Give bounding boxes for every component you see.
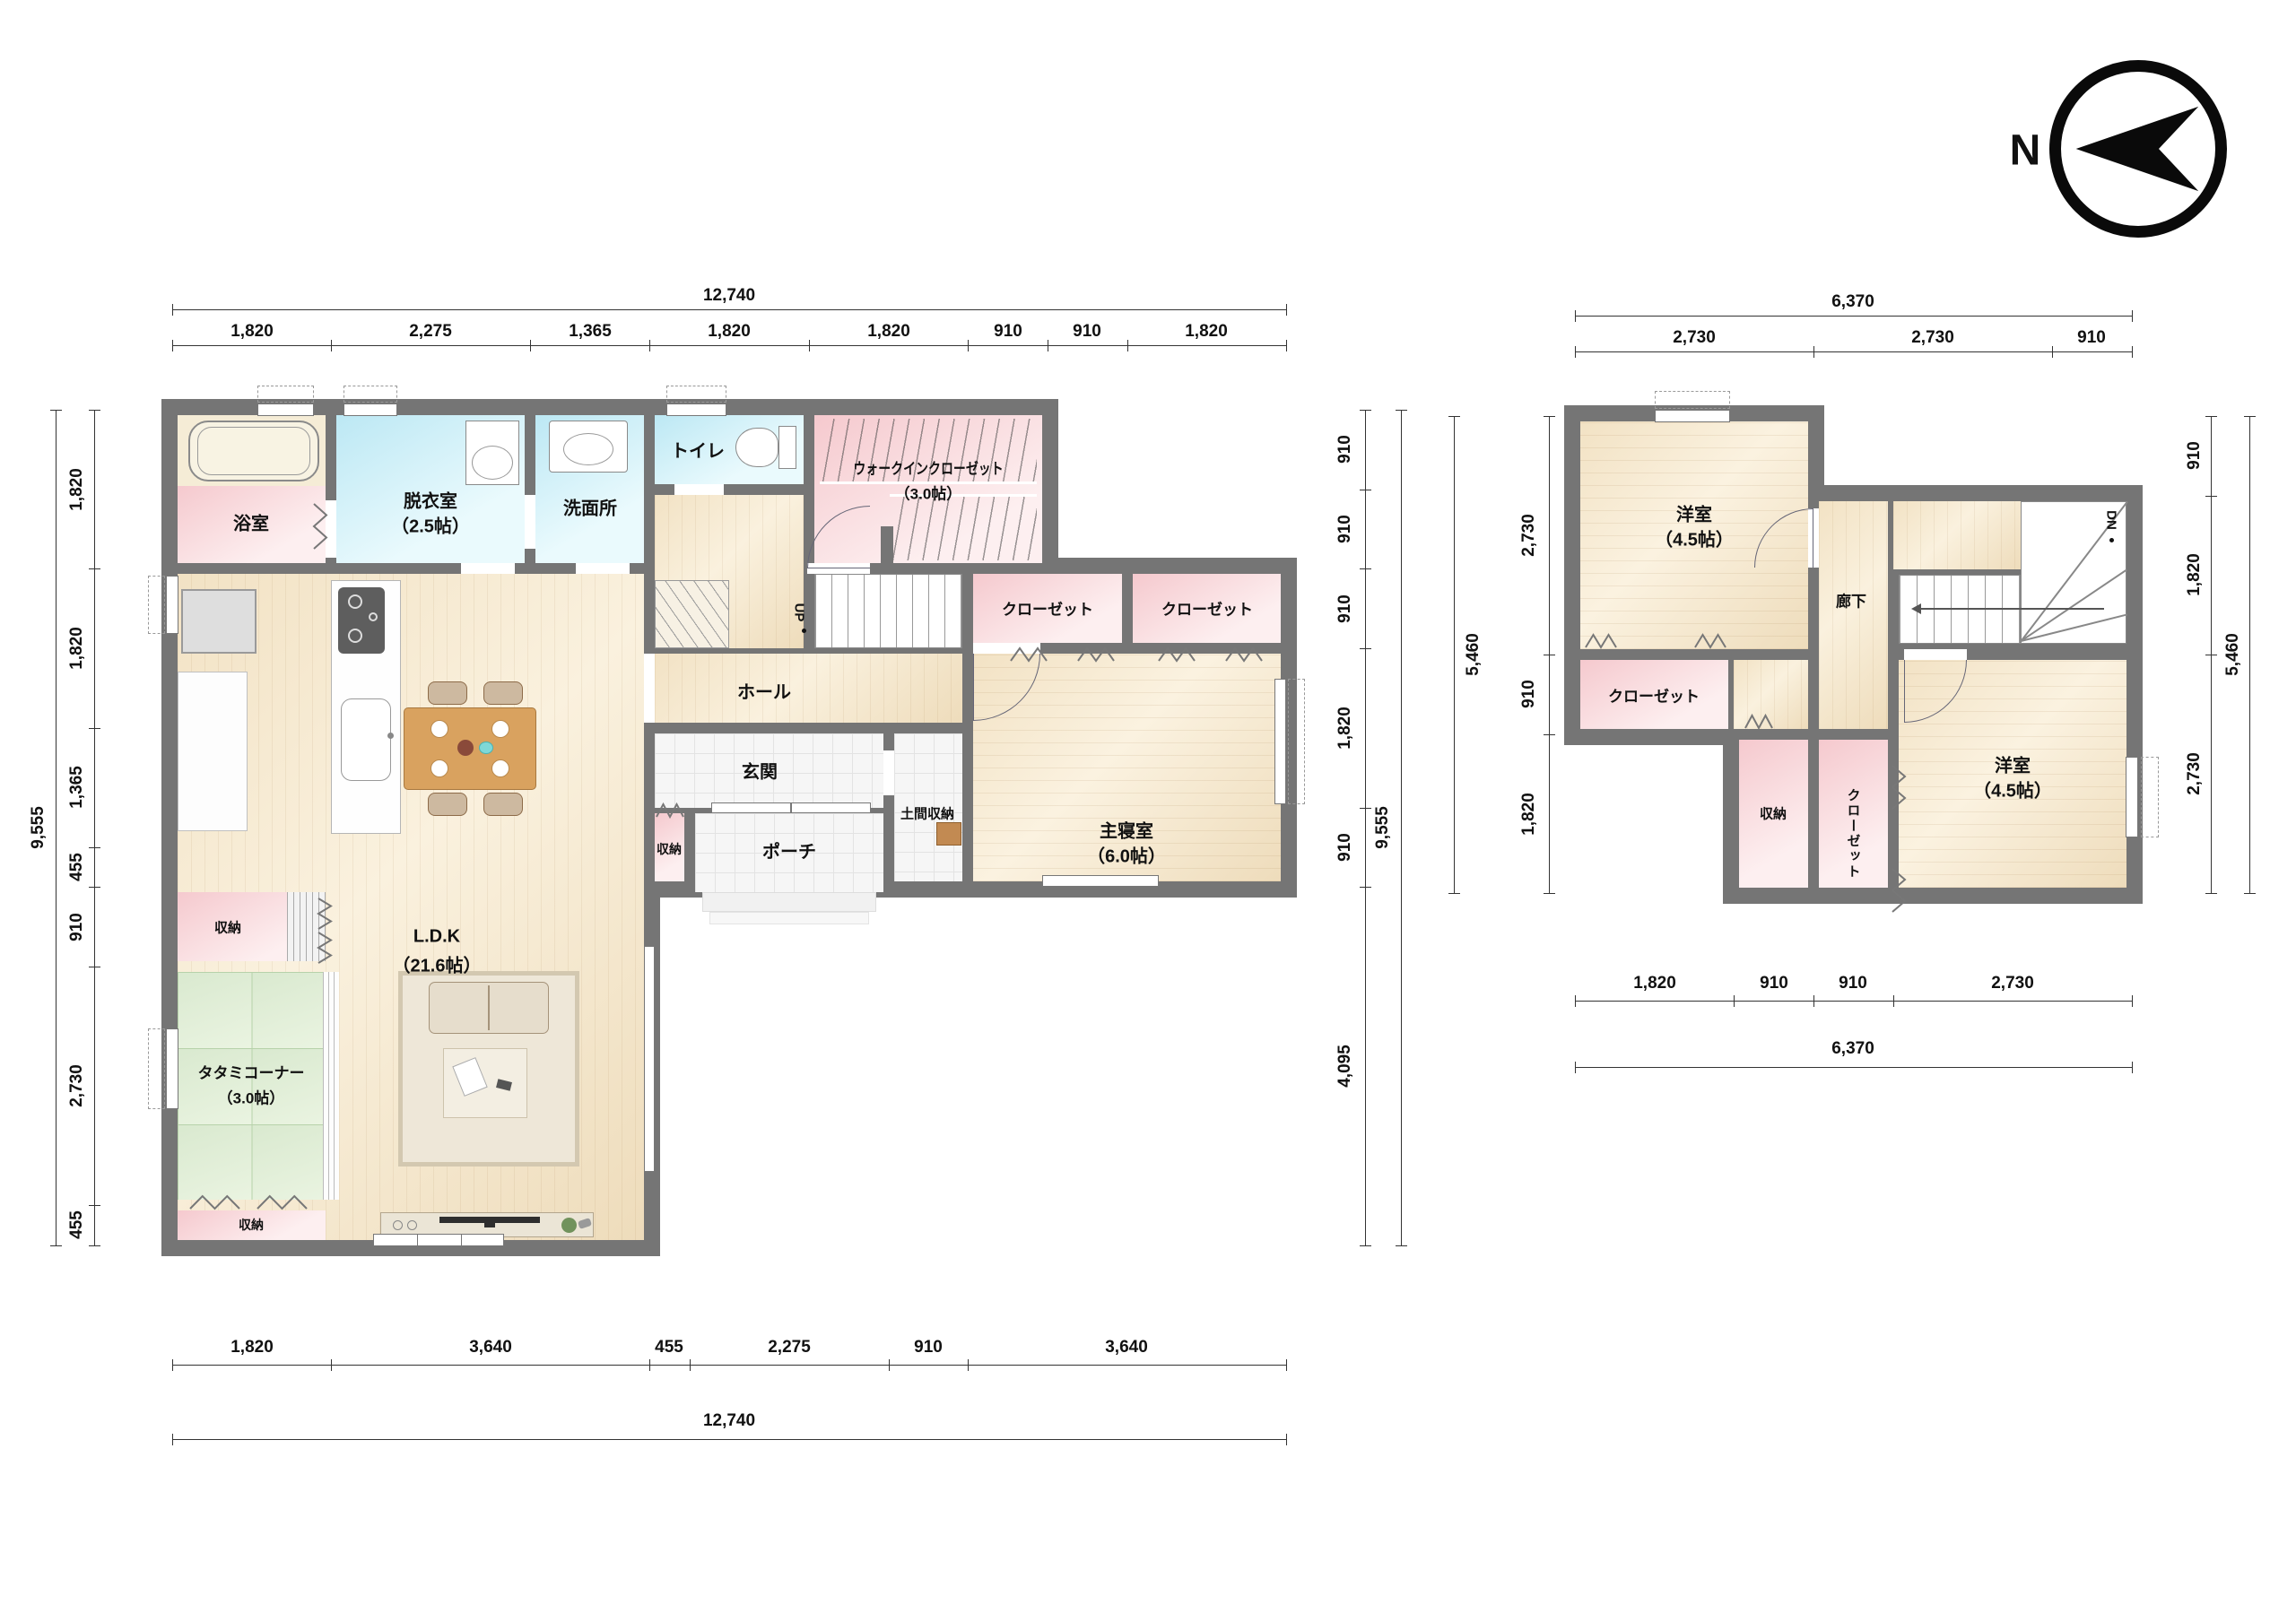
dim-line — [1365, 410, 1366, 1245]
dim-tick — [1575, 310, 1576, 322]
dim-tick — [1544, 655, 1555, 655]
dim-line — [1454, 416, 1455, 893]
dim-tick — [2132, 995, 2133, 1007]
entrance-label: 玄関 — [742, 758, 778, 784]
bifold-door-icon — [1745, 716, 1772, 728]
dim-tick — [2205, 496, 2217, 497]
sofa-cushion-divider — [488, 985, 490, 1030]
dim-tick — [889, 1359, 890, 1371]
wic-hanger-hatch — [890, 494, 1037, 560]
plate-icon — [430, 759, 448, 777]
dim: 455 — [655, 1338, 683, 1357]
doma-storage-label: 土間収納 — [900, 804, 954, 823]
dim-tick — [331, 340, 332, 351]
window-tall — [644, 946, 655, 1172]
dim: 3,640 — [469, 1338, 512, 1357]
dining-chair — [483, 793, 523, 816]
dim-tick — [89, 410, 100, 411]
toilet-bowl-icon — [735, 428, 778, 467]
dim-line — [1401, 410, 1402, 1245]
dim-tick — [2132, 346, 2133, 358]
dim-line — [1575, 1067, 2132, 1068]
dim: 910 — [1839, 974, 1867, 993]
dim-tick — [172, 1359, 173, 1371]
dim-tick — [1544, 893, 1555, 894]
toilet-tank — [778, 426, 796, 469]
storage-entry-label: 収納 — [657, 840, 682, 858]
dim: 455 — [67, 1210, 87, 1239]
dim: 1,820 — [67, 627, 87, 670]
dim-tick — [2052, 346, 2053, 358]
dim: 910 — [1335, 515, 1355, 543]
door-gap — [525, 495, 535, 549]
dim-tick — [649, 1359, 650, 1371]
bifold-door-icon — [1892, 869, 1905, 912]
plate-icon — [430, 720, 448, 738]
wic-label: ウォークインクローゼット — [853, 456, 1003, 479]
dim-tick — [1544, 416, 1555, 417]
wic-wall-stub — [881, 526, 893, 568]
kitchen-sink-icon — [341, 698, 391, 781]
bedroom-a-label: 洋室 — [1676, 500, 1712, 526]
dim-tick — [1448, 416, 1460, 417]
porch-step — [702, 892, 876, 912]
plate-icon — [491, 759, 509, 777]
window-shutter-dashed — [344, 386, 397, 403]
stairs-up-label: UP — [792, 603, 807, 622]
fridge-icon — [181, 589, 257, 654]
dim-tick — [2132, 310, 2133, 322]
dim-tick — [172, 340, 173, 351]
window — [257, 403, 314, 416]
dim-line — [94, 410, 95, 1245]
dim-tick — [2205, 655, 2217, 655]
door-gap — [1904, 649, 1967, 660]
door-gap — [326, 500, 336, 558]
window — [166, 1028, 178, 1109]
dim-line — [172, 309, 1286, 310]
storage-mid-label: 収納 — [214, 918, 241, 937]
stair-arrow-line — [1920, 608, 2104, 610]
dim-tick — [1286, 340, 1287, 351]
dim-tick — [968, 340, 969, 351]
wic-size-label: （3.0帖） — [895, 481, 962, 504]
tv-icon — [439, 1217, 540, 1223]
closet-a-label: クローゼット — [1608, 684, 1700, 707]
bifold-door-icon — [257, 1196, 307, 1209]
dim: 910 — [2185, 441, 2205, 470]
door-gap — [674, 484, 724, 495]
window — [2126, 757, 2138, 837]
dim: 2,275 — [409, 322, 452, 342]
closet-b-label: クローゼット — [1844, 788, 1863, 880]
dim: 910 — [1519, 680, 1539, 708]
dim: 2,275 — [768, 1338, 811, 1357]
window — [166, 576, 178, 634]
dim: 910 — [1760, 974, 1788, 993]
dim-tick — [1813, 995, 1814, 1007]
dim-line — [1575, 351, 2132, 352]
dim-tick — [809, 340, 810, 351]
dim-tick — [2132, 1062, 2133, 1073]
dim-tick — [89, 887, 100, 888]
dressing-label: 脱衣室 — [404, 487, 457, 513]
dim-tick — [1448, 893, 1460, 894]
window-shutter-dashed — [257, 386, 314, 403]
dim: 1,820 — [230, 322, 274, 342]
dim-tick — [649, 340, 650, 351]
dim-tick — [1286, 1359, 1287, 1371]
toilet-label: トイレ — [671, 437, 725, 463]
bifold-door-icon — [190, 1196, 239, 1209]
plate-icon — [491, 720, 509, 738]
plant-icon — [561, 1218, 577, 1233]
dim-line — [172, 1439, 1286, 1440]
dim-tick — [89, 847, 100, 848]
bifold-door-icon — [314, 504, 326, 549]
dim-tick — [89, 967, 100, 967]
stove-burner — [348, 629, 362, 643]
dim-tick — [1360, 568, 1371, 569]
window-shutter-dashed — [2141, 757, 2159, 837]
staircase-up — [814, 574, 962, 648]
dim: 3,640 — [1105, 1338, 1148, 1357]
stove-burner — [369, 612, 378, 621]
dim-bottom-total: 12,740 — [703, 1411, 755, 1431]
bowl-icon — [457, 740, 474, 756]
dim: 2,730 — [2185, 752, 2205, 795]
dim: 1,820 — [1335, 707, 1355, 750]
dining-chair — [428, 681, 467, 705]
dim-line — [172, 1365, 1286, 1366]
tv-stand — [484, 1223, 495, 1227]
bedroom-b-label: 洋室 — [1995, 751, 2031, 777]
teal-plate-icon — [479, 742, 493, 754]
window — [666, 403, 726, 416]
dim-tick — [89, 728, 100, 729]
dim-tick — [50, 410, 62, 411]
stair-arrow-head — [1911, 603, 1921, 614]
dim-line — [1575, 1001, 2132, 1002]
window-shutter-dashed — [148, 576, 165, 634]
window — [1042, 875, 1159, 887]
dim-tick — [530, 340, 531, 351]
closet-b-label: クローゼット — [1161, 597, 1253, 620]
dim: 910 — [1073, 322, 1101, 342]
dim: 2,730 — [1911, 328, 1954, 348]
dim-tick — [1396, 410, 1407, 411]
dim: 2,730 — [1991, 974, 2034, 993]
dim: 2,730 — [1519, 514, 1539, 557]
dim-tick — [1734, 995, 1735, 1007]
ldk-label: L.D.K — [413, 927, 460, 948]
bifold-door-icon — [318, 932, 331, 963]
bifold-door-icon — [1695, 635, 1726, 647]
stove-burner — [348, 594, 362, 609]
dim-tick — [1575, 995, 1576, 1007]
dressing-size-label: （2.5帖） — [391, 512, 470, 538]
bedroom-a-size-label: （4.5帖） — [1655, 525, 1734, 551]
dim-tick — [1544, 734, 1555, 735]
bifold-door-icon — [1892, 766, 1905, 809]
dim-top-total: 6,370 — [1831, 292, 1874, 312]
dim-tick — [172, 1434, 173, 1445]
dim-tick — [2244, 416, 2256, 417]
dining-chair — [428, 793, 467, 816]
storage-bottom-label: 収納 — [239, 1216, 264, 1234]
dim-tick — [1360, 490, 1371, 490]
dim: 4,095 — [1335, 1045, 1355, 1088]
bath-label: 浴室 — [233, 509, 269, 535]
dim: 1,365 — [67, 766, 87, 809]
dim: 910 — [994, 322, 1022, 342]
dim-tick — [172, 304, 173, 316]
door-gap — [644, 654, 655, 723]
dim-tick — [1396, 1245, 1407, 1246]
porch-label: ポーチ — [762, 837, 816, 863]
compass — [2049, 60, 2227, 238]
dim: 1,820 — [2185, 553, 2205, 596]
dim-tick — [1048, 340, 1048, 351]
dim-tick — [2205, 416, 2217, 417]
dim-tick — [89, 1245, 100, 1246]
second-floor-plan: 洋室 （4.5帖） 廊下 DN クローゼット 収納 クローゼット 洋室 （4.5… — [1575, 416, 2132, 893]
corridor-floor — [1819, 501, 1888, 729]
faucet-icon — [387, 733, 394, 739]
bifold-door-icon — [1159, 648, 1195, 661]
hall-label: ホール — [737, 678, 791, 704]
window-shutter-dashed — [1655, 391, 1730, 409]
tatami-label: タタミコーナー — [198, 1061, 305, 1083]
window — [1655, 410, 1730, 422]
washing-machine-drum — [472, 446, 513, 480]
dim-tick — [1575, 1062, 1576, 1073]
dim: 910 — [2077, 328, 2106, 348]
up-dot — [802, 629, 806, 633]
dim: 910 — [67, 913, 87, 941]
dim-tick — [1286, 1434, 1287, 1445]
porch-step — [709, 912, 869, 924]
bifold-door-icon — [1586, 635, 1616, 647]
dim: 910 — [1335, 833, 1355, 862]
dim-tick — [1813, 346, 1814, 358]
dim-tick — [331, 1359, 332, 1371]
dim-line — [1575, 316, 2132, 317]
dim-tick — [690, 1359, 691, 1371]
stair-landing-floor — [1893, 501, 2021, 569]
window-shutter-dashed — [1288, 679, 1305, 804]
dim-bottom-total: 6,370 — [1831, 1039, 1874, 1059]
north-label: N — [2010, 126, 2041, 176]
corridor-label: 廊下 — [1836, 589, 1866, 612]
dim-tick — [1360, 410, 1371, 411]
bifold-door-icon — [1078, 648, 1114, 661]
dim-tick — [1127, 340, 1128, 351]
dim-line — [2249, 416, 2250, 893]
floorplan-canvas: 浴室 脱衣室 （2.5帖） 洗面所 トイレ ウォークインクローゼット （3.0帖… — [0, 0, 2296, 1622]
dim-tick — [968, 1359, 969, 1371]
dining-chair — [483, 681, 523, 705]
dim-tick — [1360, 808, 1371, 809]
dim: 455 — [67, 853, 87, 881]
bifold-door-icon — [318, 898, 331, 929]
bifold-door-icon — [1011, 648, 1047, 661]
window — [344, 403, 397, 416]
closet-a-label: クローゼット — [1002, 597, 1093, 620]
dim-tick — [1360, 648, 1371, 649]
dim: 2,730 — [1673, 328, 1716, 348]
dim-tick — [89, 1205, 100, 1206]
washroom-label: 洗面所 — [563, 494, 617, 520]
dn-dot — [2109, 538, 2114, 542]
dim-right-total: 9,555 — [1373, 806, 1393, 849]
dim-tick — [89, 568, 100, 569]
ldk-size-label: （21.6帖） — [393, 951, 482, 977]
dim: 1,820 — [1185, 322, 1228, 342]
dim: 1,820 — [67, 468, 87, 511]
dim: 910 — [914, 1338, 943, 1357]
stove-icon — [338, 587, 385, 654]
hall-shelf — [655, 580, 729, 648]
dim-top-total: 12,740 — [703, 286, 755, 306]
dim: 1,820 — [867, 322, 910, 342]
dim-tick — [1286, 304, 1287, 316]
dim-left-total: 9,555 — [29, 806, 48, 849]
dim-line — [172, 345, 1286, 346]
dim-tick — [1575, 346, 1576, 358]
dim: 910 — [1335, 594, 1355, 623]
dim-tick — [1360, 1245, 1371, 1246]
dim: 1,820 — [1633, 974, 1676, 993]
doma-shelf — [936, 822, 961, 846]
master-label: 主寝室 — [1100, 817, 1153, 843]
washbasin-bowl — [563, 433, 613, 465]
dim: 910 — [1335, 435, 1355, 464]
bifold-door-icon — [657, 804, 683, 817]
dim-tick — [1893, 995, 1894, 1007]
first-floor-plan: 浴室 脱衣室 （2.5帖） 洗面所 トイレ ウォークインクローゼット （3.0帖… — [172, 410, 1286, 1245]
bedroom-b-size-label: （4.5帖） — [1973, 776, 2052, 802]
master-size-label: （6.0帖） — [1087, 842, 1166, 868]
speaker-icon — [393, 1220, 403, 1230]
door-gap — [576, 563, 630, 574]
dim: 1,820 — [230, 1338, 274, 1357]
cupboard-counter — [178, 672, 248, 831]
dim: 1,820 — [708, 322, 751, 342]
dim-tick — [50, 1245, 62, 1246]
dim-tick — [2244, 893, 2256, 894]
dim-right-total: 5,460 — [2223, 633, 2243, 676]
bifold-door-icon — [1226, 648, 1262, 661]
dim-left-total: 5,460 — [1464, 633, 1483, 676]
stairs-down-label: DN — [2104, 510, 2119, 530]
window-shutter-dashed — [148, 1028, 165, 1109]
window-shutter-dashed — [666, 386, 726, 403]
window — [1274, 679, 1286, 804]
door-gap — [883, 750, 894, 795]
dim: 2,730 — [67, 1064, 87, 1107]
door-gap — [461, 563, 515, 574]
dim-line — [56, 410, 57, 1245]
storage-label: 収納 — [1760, 804, 1787, 823]
tatami-slider — [323, 972, 339, 1200]
dim: 1,365 — [569, 322, 612, 342]
dim-tick — [2205, 893, 2217, 894]
entrance-sliding-door — [711, 802, 871, 813]
bathtub-icon-inner — [197, 427, 310, 475]
speaker-icon — [407, 1220, 417, 1230]
dim-tick — [1360, 887, 1371, 888]
window-sliding — [373, 1234, 504, 1246]
north-arrow-icon — [2069, 100, 2204, 198]
tatami-size-label: （3.0帖） — [218, 1086, 285, 1108]
hall-floor — [655, 654, 962, 723]
dim: 1,820 — [1519, 793, 1539, 836]
